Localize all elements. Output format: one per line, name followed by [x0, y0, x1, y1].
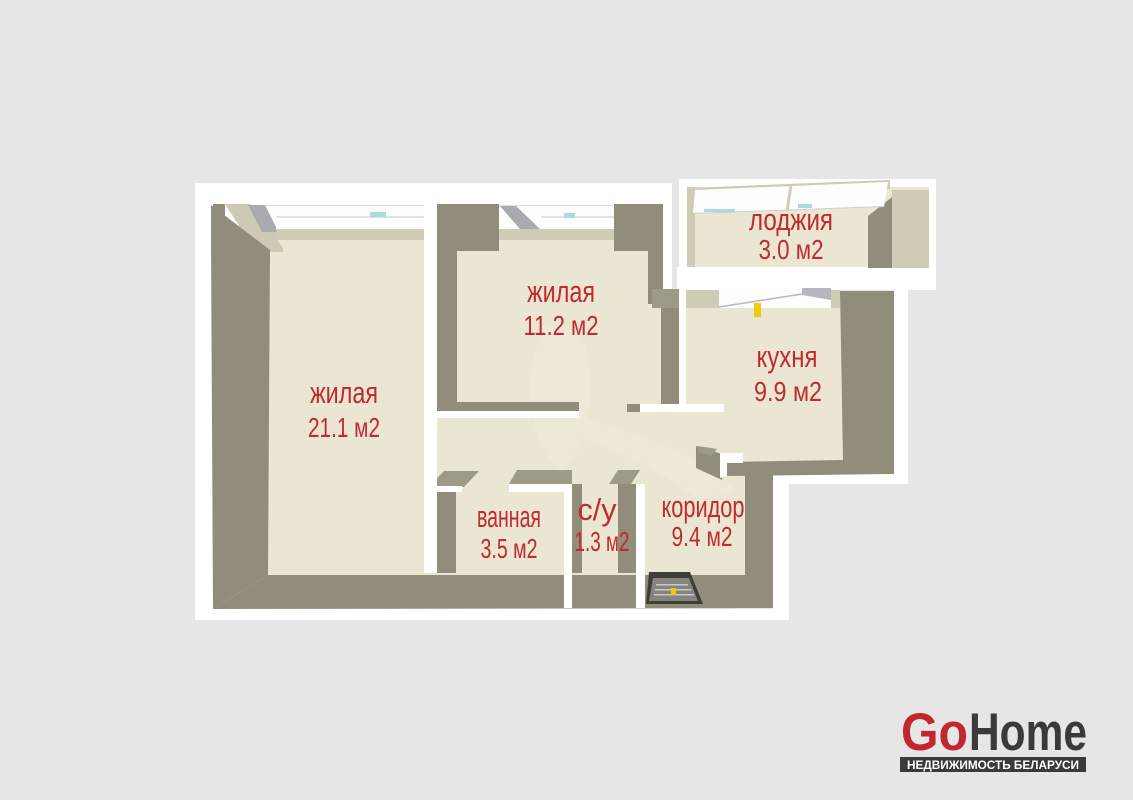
- svg-text:Go: Go: [901, 703, 968, 762]
- svg-text:Home: Home: [969, 703, 1087, 762]
- svg-text:коридор: коридор: [662, 489, 745, 524]
- svg-text:кухня: кухня: [757, 339, 818, 374]
- svg-text:3.5 м2: 3.5 м2: [481, 533, 538, 564]
- svg-text:9.4 м2: 9.4 м2: [672, 521, 733, 552]
- svg-text:3.0 м2: 3.0 м2: [759, 234, 824, 265]
- svg-text:НЕДВИЖИМОСТЬ БЕЛАРУСИ: НЕДВИЖИМОСТЬ БЕЛАРУСИ: [907, 760, 1079, 772]
- svg-text:21.1 м2: 21.1 м2: [308, 412, 380, 443]
- svg-text:11.2 м2: 11.2 м2: [524, 310, 599, 341]
- svg-text:1.3 м2: 1.3 м2: [575, 526, 630, 557]
- svg-text:ванная: ванная: [477, 499, 541, 534]
- svg-text:9.9 м2: 9.9 м2: [754, 376, 822, 407]
- svg-text:жилая: жилая: [310, 375, 378, 410]
- svg-text:жилая: жилая: [527, 274, 595, 309]
- svg-text:лоджия: лоджия: [749, 202, 833, 237]
- svg-text:с/у: с/у: [578, 492, 617, 527]
